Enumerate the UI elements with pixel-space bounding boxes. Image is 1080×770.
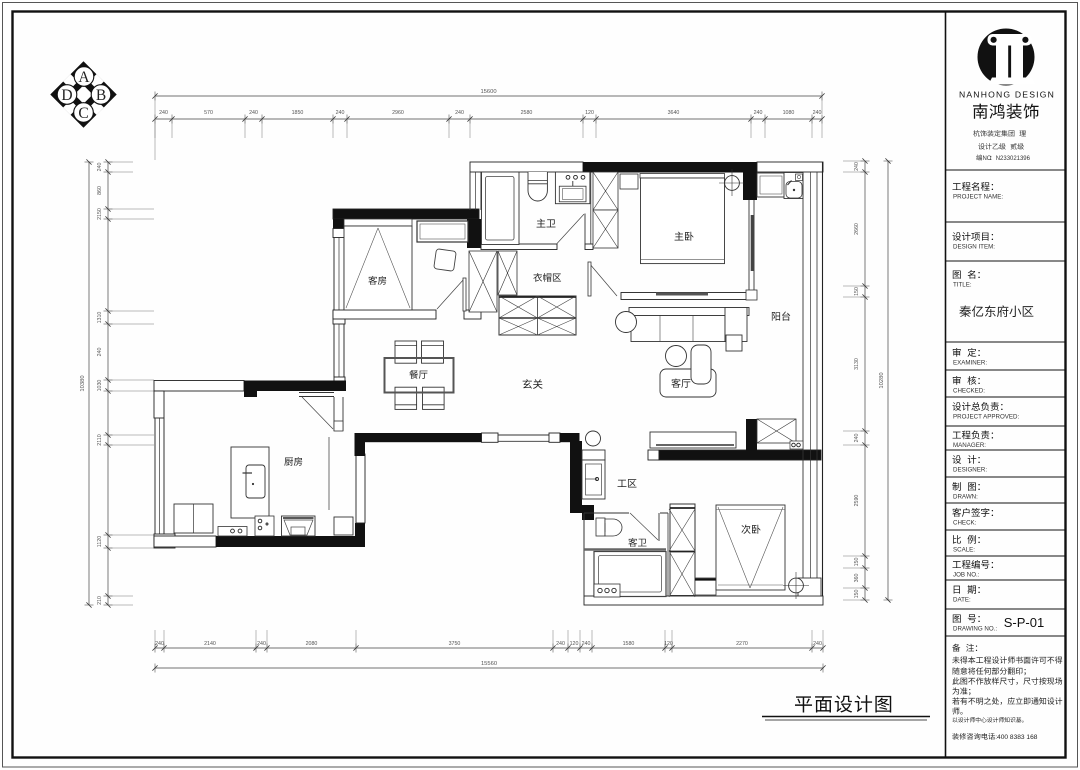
svg-text:JOB NO.:: JOB NO.: <box>953 572 980 579</box>
svg-text:2960: 2960 <box>392 110 404 116</box>
svg-text:DRAWN:: DRAWN: <box>953 494 978 501</box>
svg-text:210: 210 <box>97 596 103 605</box>
svg-text:A: A <box>78 69 90 86</box>
svg-text:570: 570 <box>204 110 213 116</box>
svg-text:10380: 10380 <box>80 375 86 391</box>
svg-text:3750: 3750 <box>449 641 461 647</box>
svg-text:240: 240 <box>754 110 763 116</box>
svg-text:2580: 2580 <box>521 110 533 116</box>
svg-text:1080: 1080 <box>783 110 795 116</box>
svg-text:15600: 15600 <box>480 89 496 95</box>
svg-text:1580: 1580 <box>623 641 635 647</box>
svg-text:120: 120 <box>664 641 673 647</box>
svg-text:N233021396: N233021396 <box>996 156 1031 162</box>
svg-text:150: 150 <box>854 558 860 567</box>
svg-text:150: 150 <box>854 287 860 296</box>
svg-text:2110: 2110 <box>97 434 103 445</box>
svg-text:240: 240 <box>159 110 168 116</box>
svg-text:DRAWING NO.:: DRAWING NO.: <box>953 626 997 633</box>
svg-text::400 8383 168: :400 8383 168 <box>995 734 1038 741</box>
svg-text:2150: 2150 <box>97 208 103 220</box>
svg-text:B: B <box>96 87 106 104</box>
svg-text:DESIGN ITEM:: DESIGN ITEM: <box>953 244 995 251</box>
svg-text:240: 240 <box>455 110 464 116</box>
svg-text:120: 120 <box>585 110 594 116</box>
svg-text:240: 240 <box>97 163 103 172</box>
svg-text:2140: 2140 <box>204 641 216 647</box>
svg-text:1030: 1030 <box>97 380 103 392</box>
svg-text:D: D <box>61 87 72 104</box>
svg-text:860: 860 <box>97 186 103 195</box>
svg-text:240: 240 <box>813 110 822 116</box>
svg-text:240: 240 <box>97 348 103 357</box>
svg-text:TITLE:: TITLE: <box>953 282 972 289</box>
svg-text:1120: 1120 <box>97 536 103 547</box>
svg-text:120: 120 <box>570 641 579 647</box>
svg-text:240: 240 <box>582 641 591 647</box>
svg-text:240: 240 <box>155 641 164 647</box>
svg-text:240: 240 <box>249 110 258 116</box>
svg-text:150: 150 <box>854 590 860 599</box>
svg-text:CHECKED:: CHECKED: <box>953 388 985 395</box>
svg-text:NANHONG DESIGN: NANHONG DESIGN <box>959 90 1055 100</box>
svg-text:240: 240 <box>813 641 822 647</box>
svg-text:NO: NO <box>983 156 992 162</box>
svg-text:CHECK:: CHECK: <box>953 520 977 527</box>
svg-text:DATE:: DATE: <box>953 597 971 604</box>
svg-text:240: 240 <box>336 110 345 116</box>
svg-text:2270: 2270 <box>736 641 748 647</box>
svg-text:2590: 2590 <box>854 495 860 507</box>
svg-text:240: 240 <box>257 641 266 647</box>
svg-text:240: 240 <box>556 641 565 647</box>
svg-text:3130: 3130 <box>854 358 860 370</box>
svg-text:MANAGER:: MANAGER: <box>953 442 986 449</box>
svg-text:240: 240 <box>854 162 860 171</box>
svg-text:1310: 1310 <box>97 312 103 324</box>
svg-text:SCALE:: SCALE: <box>953 547 975 554</box>
svg-text:S-P-01: S-P-01 <box>1004 615 1044 630</box>
svg-text:360: 360 <box>854 574 860 583</box>
svg-text:15560: 15560 <box>481 661 497 667</box>
svg-text:2660: 2660 <box>854 223 860 235</box>
svg-text:PROJECT APPROVED:: PROJECT APPROVED: <box>953 414 1020 421</box>
svg-text:3640: 3640 <box>668 110 680 116</box>
svg-text:2080: 2080 <box>306 641 318 647</box>
svg-text:10280: 10280 <box>879 372 885 388</box>
svg-text:DESIGNER:: DESIGNER: <box>953 467 987 474</box>
svg-text:EXAMINER:: EXAMINER: <box>953 360 987 367</box>
svg-text:PROJECT NAME:: PROJECT NAME: <box>953 194 1003 201</box>
svg-text:1850: 1850 <box>292 110 304 116</box>
svg-text:240: 240 <box>854 434 860 443</box>
svg-text:C: C <box>78 105 88 122</box>
